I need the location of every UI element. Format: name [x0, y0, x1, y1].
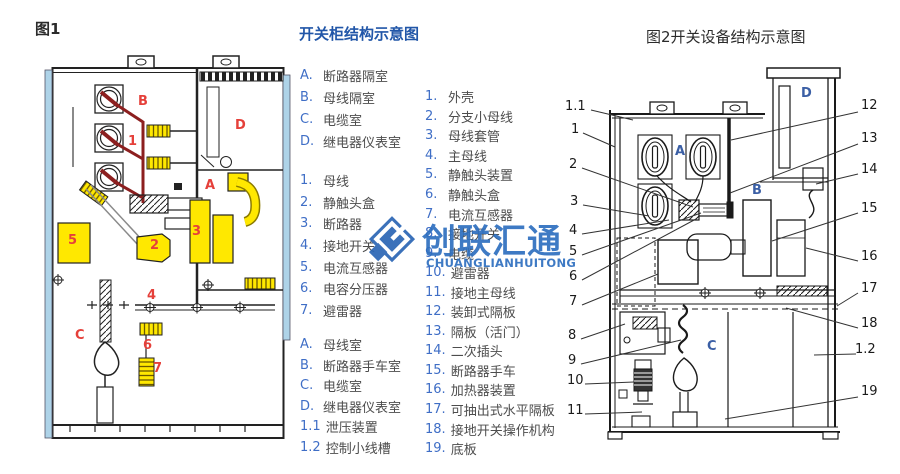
- legend-item: 3.母线套管: [425, 126, 555, 146]
- fig2-left-label: 1.1: [565, 100, 586, 113]
- legend-title: 开关柜结构示意图: [299, 23, 419, 44]
- legend-item: 6.静触头盒: [425, 185, 555, 205]
- fig2-compartment-letter: D: [801, 87, 812, 100]
- legend-item: 19.底板: [425, 439, 555, 459]
- fig1-part-label: 2: [150, 239, 159, 252]
- fig1-part-label: D: [235, 119, 246, 132]
- legend-item: 17.可抽出式水平隔板: [425, 400, 555, 420]
- legend-item: 18.接地开关操作机构: [425, 419, 555, 439]
- watermark: 创联汇通 CHUANGLIANHUITONG: [368, 212, 578, 287]
- figure1-caption: 图1: [35, 18, 60, 39]
- fig1-part-label: C: [75, 329, 85, 342]
- fig1-part-label: 1: [128, 135, 137, 148]
- fig2-left-label: 10: [567, 374, 584, 387]
- legend-item: 2.静触头盒: [300, 192, 401, 214]
- fig1-part-label: 5: [68, 234, 77, 247]
- fig2-left-label: 9: [568, 354, 576, 367]
- legend-item: 1.母线: [300, 170, 401, 192]
- figure2-diagram: 1.1 1 2 3 4 5 6 7 8 9 10 11 12 13 14 15 …: [555, 60, 900, 465]
- legend-item: 1.2控制小线槽: [300, 437, 401, 458]
- fig2-compartment-letter: B: [752, 184, 762, 197]
- legend-item: 1.外壳: [425, 87, 555, 107]
- fig2-left-label: 1: [571, 123, 579, 136]
- fig2-compartment-letter: C: [707, 340, 717, 353]
- legend-item: D.继电器仪表室: [300, 396, 401, 417]
- legend-item: 13.隔板（活门）: [425, 322, 555, 342]
- fig2-right-label: 1.2: [855, 343, 876, 356]
- fig1-part-label: 7: [153, 362, 162, 375]
- legend-item: 14.二次插头: [425, 341, 555, 361]
- fig2-right-label: 19: [861, 385, 878, 398]
- figure2-caption: 图2开关设备结构示意图: [646, 26, 806, 47]
- legend-item: 15.断路器手车: [425, 361, 555, 381]
- fig1-part-label: 4: [147, 289, 156, 302]
- watermark-subtext: CHUANGLIANHUITONG: [426, 256, 576, 270]
- figure1-diagram: B D 1 A 5 3 2 4 C 6 7: [40, 55, 295, 445]
- fig2-left-label: 7: [569, 295, 577, 308]
- legend-item: C.电缆室: [300, 375, 401, 396]
- legend-item: 7.避雷器: [300, 300, 401, 322]
- fig2-left-label: 2: [569, 158, 577, 171]
- legend-group-rooms1: A.断路器隔室 B.母线隔室 C.电缆室 D.继电器仪表室: [300, 64, 401, 152]
- fig2-right-label: 18: [861, 317, 878, 330]
- legend-item: B.断路器手车室: [300, 355, 401, 376]
- legend-item: 5.静触头装置: [425, 165, 555, 185]
- watermark-logo-icon: [368, 214, 416, 268]
- legend-item: B.母线隔室: [300, 86, 401, 108]
- figure1-drawing: [40, 55, 295, 445]
- fig2-right-label: 13: [861, 132, 878, 145]
- fig1-part-label: B: [138, 95, 148, 108]
- legend-item: A.断路器隔室: [300, 64, 401, 86]
- legend-group-rooms2: A.母线室 B.断路器手车室 C.电缆室 D.继电器仪表室 1.1泄压装置 1.…: [300, 334, 401, 458]
- figure2-drawing: [555, 60, 900, 465]
- fig2-compartment-letter: A: [675, 145, 685, 158]
- legend-item: 1.1泄压装置: [300, 417, 401, 438]
- fig2-left-label: 3: [570, 195, 578, 208]
- legend-item: 4.主母线: [425, 146, 555, 166]
- legend-item: 2.分支小母线: [425, 107, 555, 127]
- fig2-left-label: 11: [567, 404, 584, 417]
- fig2-right-label: 16: [861, 250, 878, 263]
- fig2-right-label: 12: [861, 99, 878, 112]
- legend-item: A.母线室: [300, 334, 401, 355]
- fig2-right-label: 14: [861, 163, 878, 176]
- legend-item: 12.装卸式隔板: [425, 302, 555, 322]
- fig1-part-label: A: [205, 179, 215, 192]
- fig2-right-label: 15: [861, 202, 878, 215]
- page: 图1 开关柜结构示意图 图2开关设备结构示意图: [0, 0, 900, 474]
- fig1-part-label: 3: [192, 225, 201, 238]
- fig2-right-label: 17: [861, 282, 878, 295]
- legend-item: C.电缆室: [300, 108, 401, 130]
- fig1-part-label: 6: [143, 339, 152, 352]
- legend-item: 16.加热器装置: [425, 380, 555, 400]
- legend-item: D.继电器仪表室: [300, 130, 401, 152]
- fig2-left-label: 8: [568, 329, 576, 342]
